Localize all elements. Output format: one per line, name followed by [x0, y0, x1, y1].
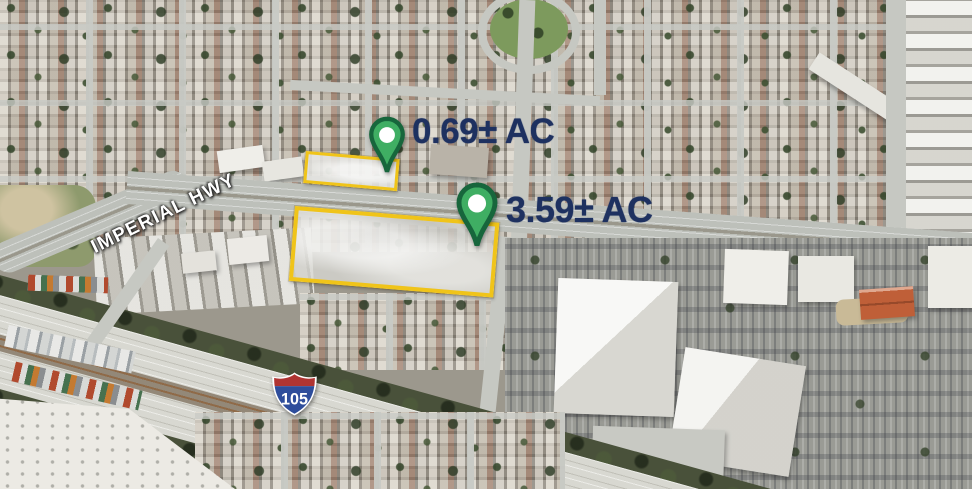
retail-roof — [723, 249, 789, 305]
interstate-shield-icon: 105 — [271, 371, 318, 417]
location-pin-icon — [366, 116, 408, 176]
map-pin-large-parcel — [453, 181, 501, 251]
clay-tile-roof — [859, 286, 915, 320]
acreage-label-large: 3.59± AC — [506, 189, 653, 231]
retail-roof — [798, 256, 854, 302]
big-box-store-roof — [554, 278, 679, 417]
retail-roof — [928, 246, 972, 308]
shield-number: 105 — [281, 390, 308, 408]
interstate-105-shield: 105 — [271, 371, 318, 417]
residential-neighborhood-bottom — [195, 412, 565, 489]
location-pin-icon — [453, 181, 501, 251]
warehouse-small-roof — [181, 250, 217, 273]
map-pin-small-parcel — [366, 116, 408, 176]
warehouse-small-roof — [227, 235, 269, 265]
aerial-map-image: 105 0.69± AC 3.59± AC IMPERIAL HWY — [0, 0, 972, 489]
residential-strip-south-of-hwy — [300, 293, 515, 370]
acreage-label-small: 0.69± AC — [412, 112, 554, 152]
container-row — [28, 275, 109, 294]
city-street — [594, 0, 606, 95]
